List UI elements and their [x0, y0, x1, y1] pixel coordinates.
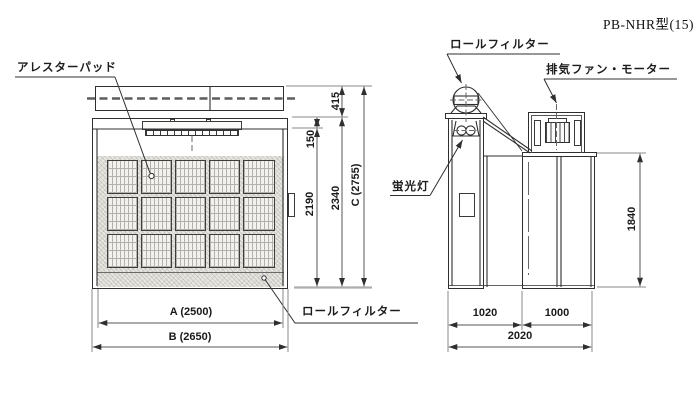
dim-text-2020: 2020 — [490, 330, 550, 342]
label-roll-filter-side: ロールフィルター — [450, 39, 550, 52]
fluorescent-leader — [430, 140, 463, 196]
dim-text-C2755: C (2755) — [350, 155, 362, 215]
dim-text-2190: 2190 — [304, 174, 316, 234]
dim-text-A2500: A (2500) — [156, 306, 226, 318]
dim-text-1020: 1020 — [455, 307, 515, 319]
dim-text-415: 415 — [330, 71, 342, 131]
dim-text-150: 150 — [305, 109, 317, 169]
roll-filter-right-leader — [447, 54, 462, 83]
hood-incline — [483, 121, 530, 153]
dim-text-1000: 1000 — [527, 307, 587, 319]
label-arrester-pad: アレスターパッド — [17, 62, 117, 75]
arrester-pad-marker — [149, 173, 154, 178]
drawing-title: PB-NHR型(15) — [603, 13, 694, 33]
dim-text-1840: 1840 — [626, 189, 638, 249]
label-exhaust-fan-motor: 排気ファン・モーター — [546, 64, 671, 77]
label-fluorescent-lamp: 蛍光灯 — [392, 181, 430, 194]
technical-drawing-paint-booth: PB-NHR型(15) アレスターパッド ロールフィルター ロールフィルター 排… — [0, 0, 700, 400]
dim-text-2340: 2340 — [330, 168, 342, 228]
label-roll-filter-front: ロールフィルター — [302, 306, 402, 319]
roll-filter-left-marker — [262, 276, 266, 280]
hood-incline — [483, 117, 532, 151]
roll-filter-drum — [453, 87, 479, 113]
dim-text-B2650: B (2650) — [155, 331, 225, 343]
exhaust-fan-leader — [544, 79, 557, 103]
arrester-pad-leader — [115, 77, 150, 173]
